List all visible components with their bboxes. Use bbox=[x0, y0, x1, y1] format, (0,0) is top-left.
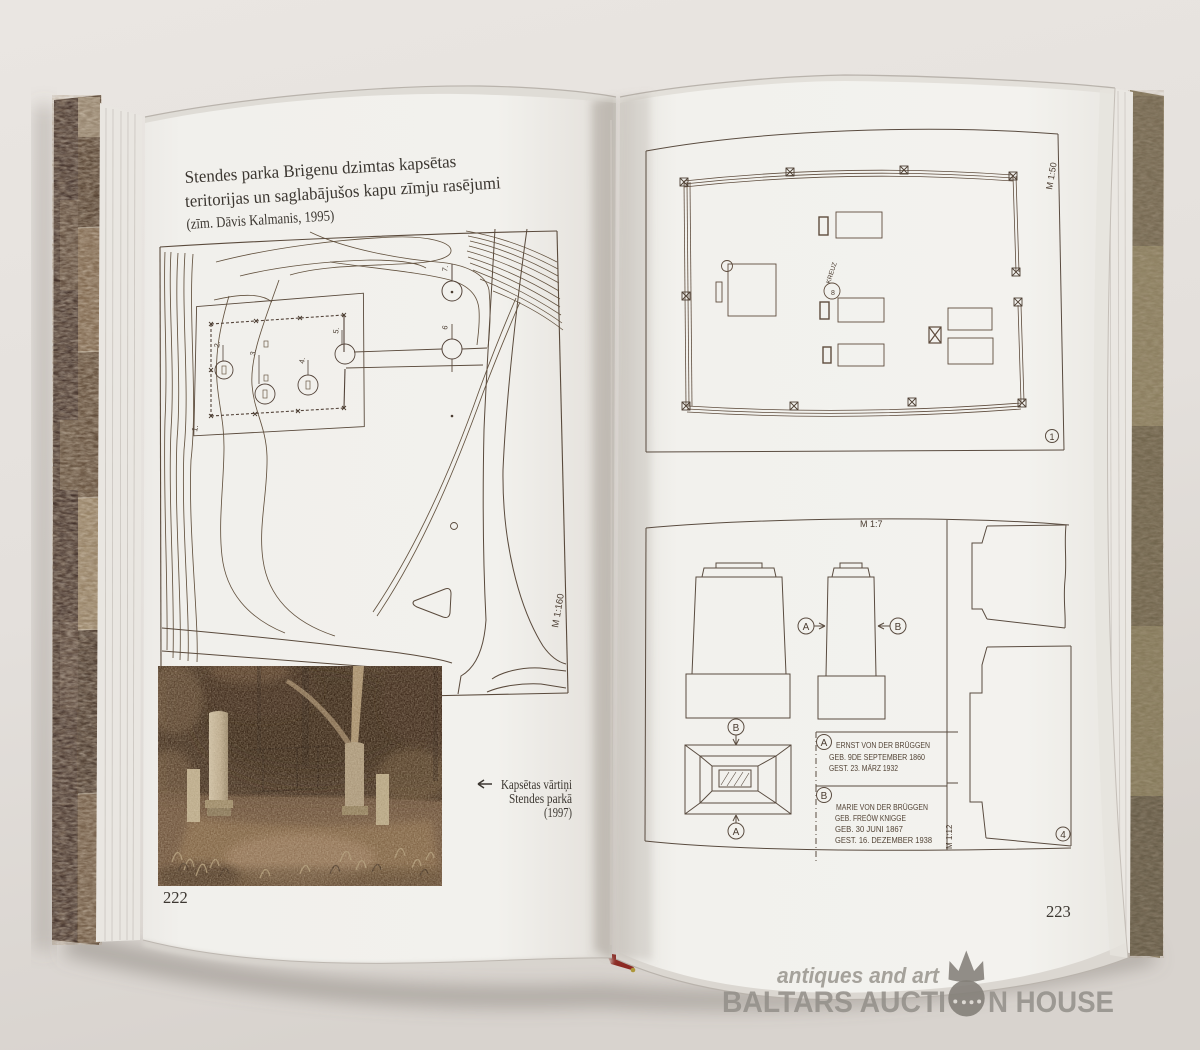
svg-text:GEST. 23. MÄRZ 1932: GEST. 23. MÄRZ 1932 bbox=[829, 764, 898, 773]
svg-text:B: B bbox=[821, 791, 828, 802]
svg-text:GEST. 16. DEZEMBER 1938: GEST. 16. DEZEMBER 1938 bbox=[835, 836, 933, 845]
svg-text:antiques and art: antiques and art bbox=[777, 963, 941, 988]
svg-text:222: 222 bbox=[163, 888, 188, 907]
svg-text:Kapsētas vārtiņi: Kapsētas vārtiņi bbox=[501, 777, 572, 792]
svg-text:4: 4 bbox=[1060, 830, 1066, 841]
svg-text:GEB. FREŌW KNIGGE: GEB. FREŌW KNIGGE bbox=[835, 814, 906, 823]
svg-text:GEB. 9DE SEPTEMBER 1860: GEB. 9DE SEPTEMBER 1860 bbox=[829, 753, 925, 762]
svg-text:N HOUSE: N HOUSE bbox=[988, 986, 1114, 1019]
svg-text:ERNST VON DER BRÜGGEN: ERNST VON DER BRÜGGEN bbox=[836, 741, 930, 750]
svg-text:Stendes parkā: Stendes parkā bbox=[509, 791, 572, 806]
svg-text:A: A bbox=[803, 622, 810, 633]
svg-text:(1997): (1997) bbox=[544, 805, 572, 820]
svg-text:1: 1 bbox=[1049, 432, 1054, 442]
svg-text:BALTARS AUCTI: BALTARS AUCTI bbox=[722, 986, 946, 1019]
svg-text:MARIE VON DER BRÜGGEN: MARIE VON DER BRÜGGEN bbox=[836, 803, 928, 812]
svg-text:223: 223 bbox=[1046, 902, 1071, 921]
svg-text:M 1:12: M 1:12 bbox=[945, 824, 954, 849]
svg-text:A: A bbox=[733, 827, 740, 838]
svg-text:B: B bbox=[895, 622, 902, 633]
svg-text:M 1:7: M 1:7 bbox=[860, 519, 883, 529]
svg-text:A: A bbox=[821, 738, 828, 749]
svg-text:8: 8 bbox=[831, 290, 835, 297]
svg-text:GEB. 30 JUNI 1867: GEB. 30 JUNI 1867 bbox=[835, 825, 904, 834]
svg-text:B: B bbox=[733, 723, 740, 734]
